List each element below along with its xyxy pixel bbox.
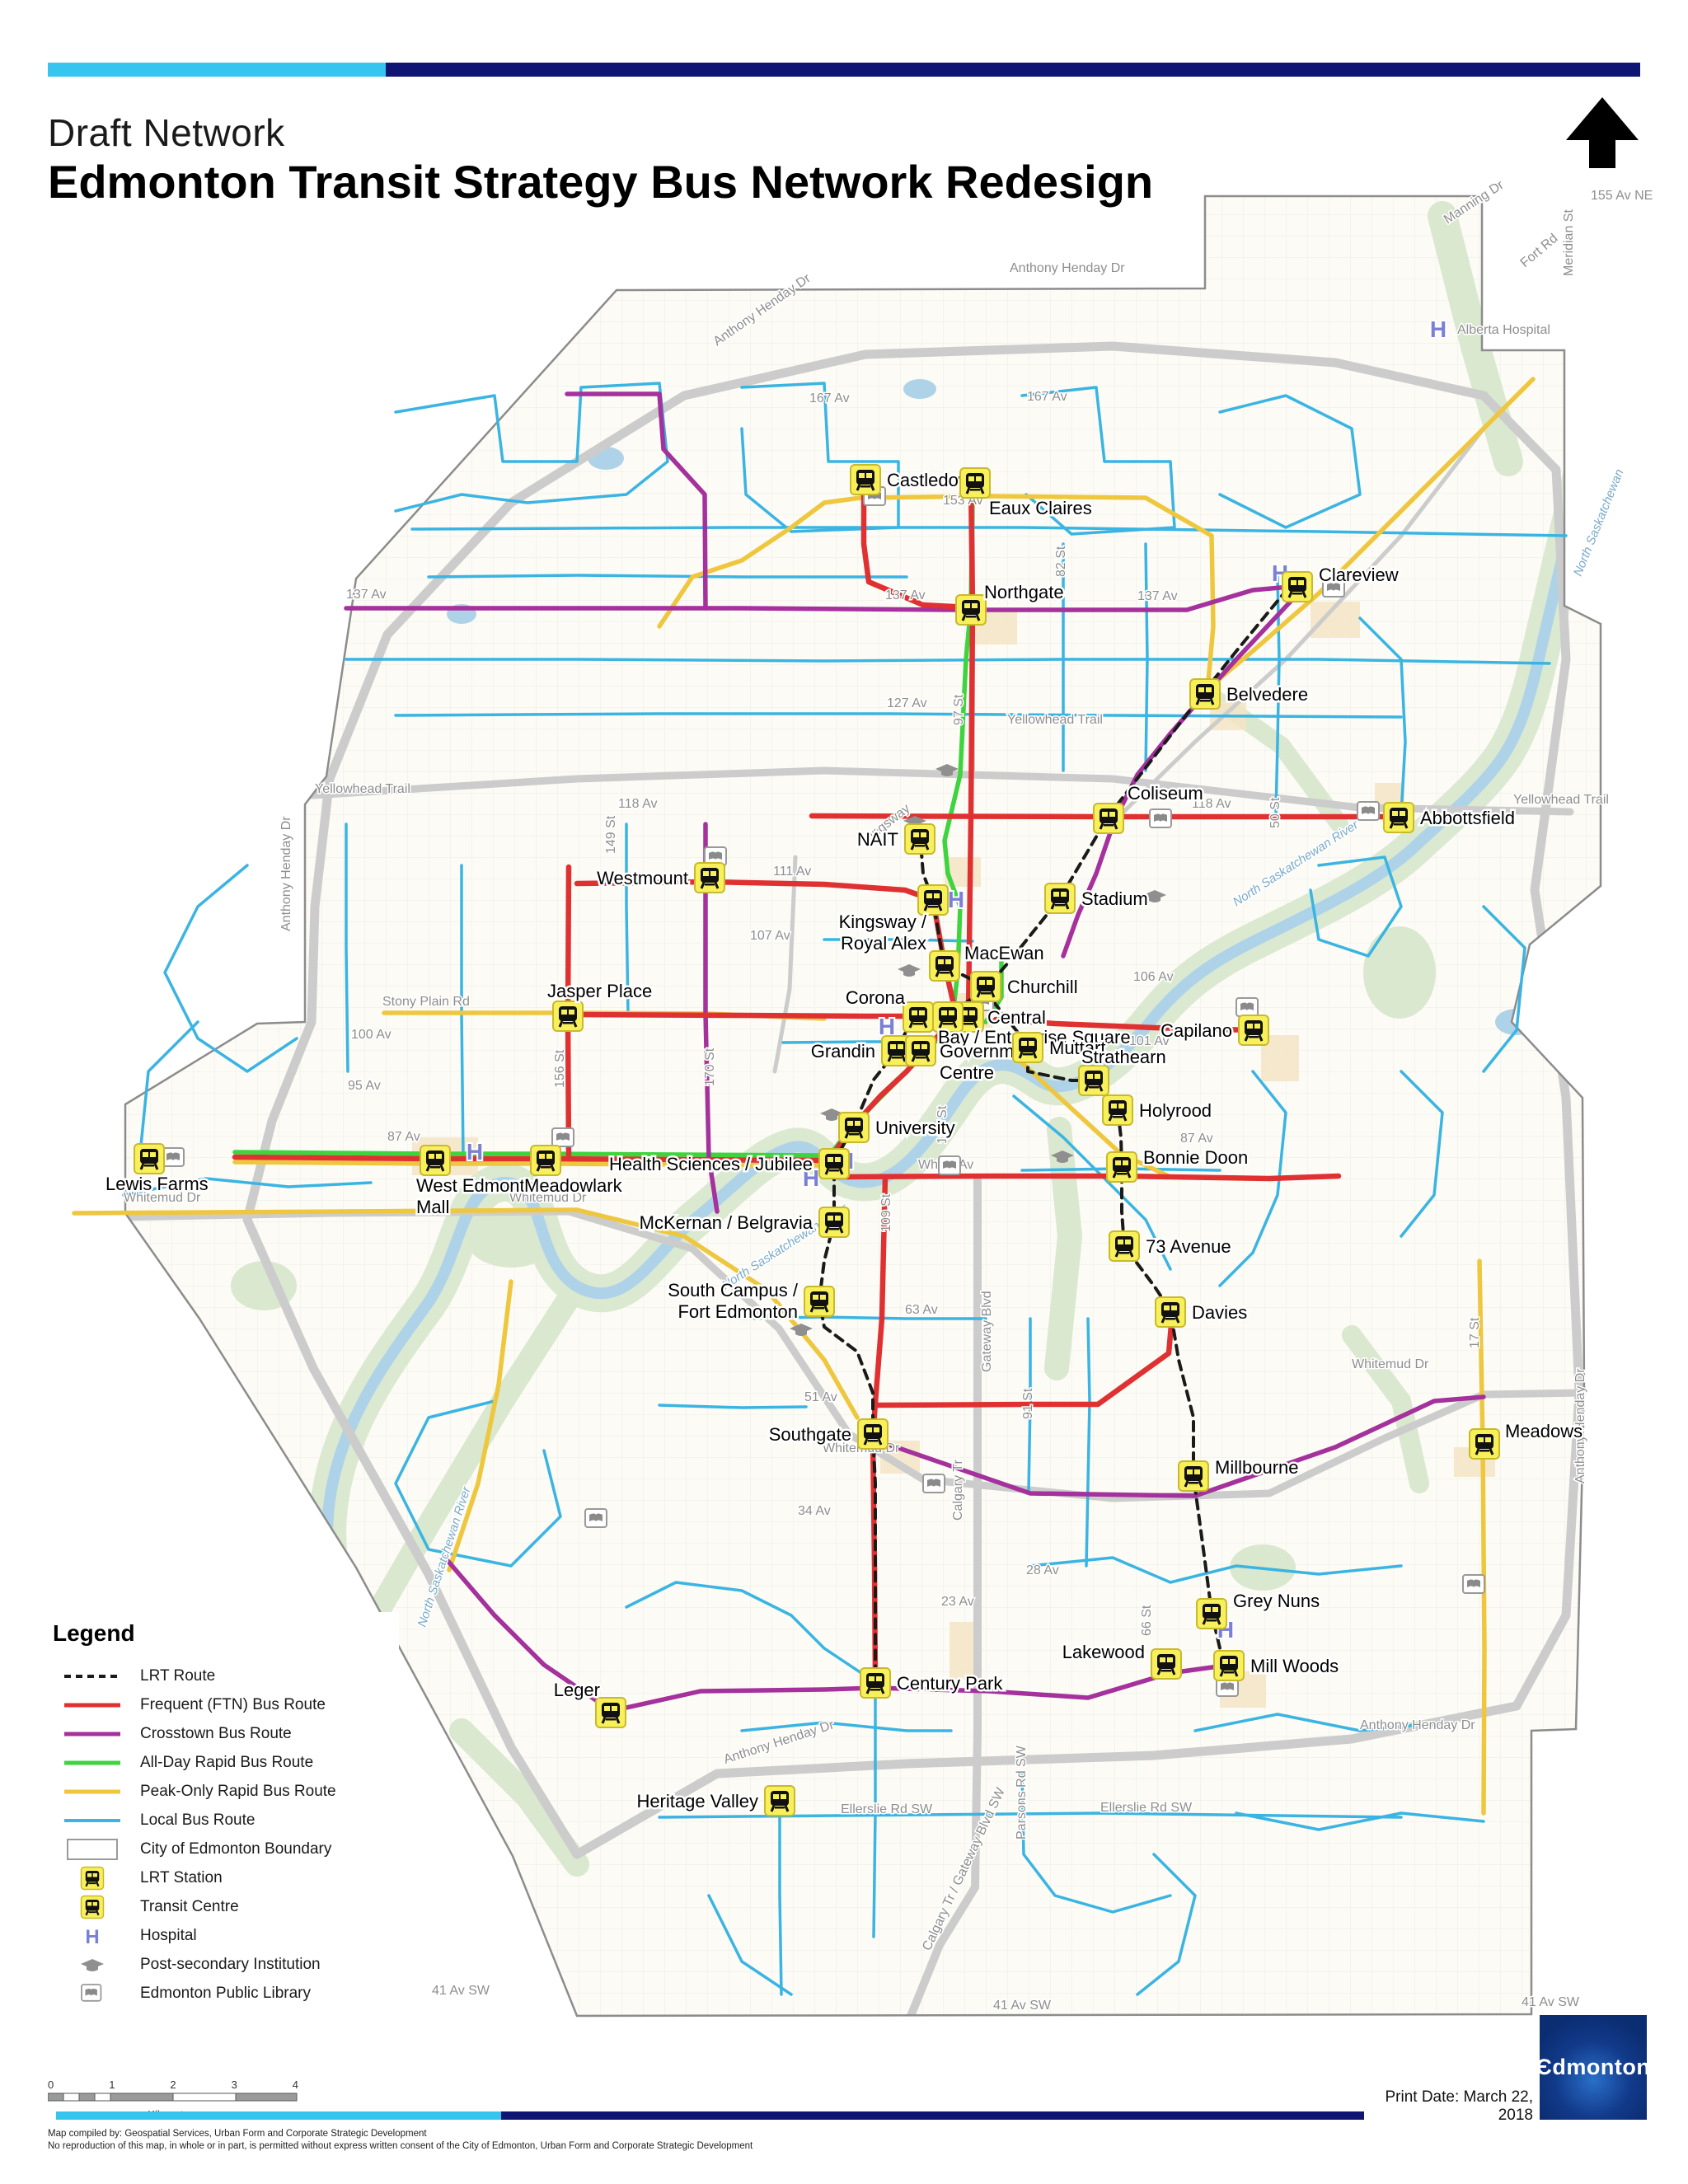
station-label-abbottsfield: Abbottsfield [1420,808,1515,828]
legend-item-label: City of Edmonton Boundary [132,1840,331,1858]
bus-window-right [835,1216,841,1221]
bus-window-right [1194,1469,1200,1474]
bus-window-right [150,1152,156,1157]
road-label: 97 St [952,694,966,725]
scale-segment [173,2093,236,2101]
bus-window-left [703,871,709,876]
station-lakewood [1151,1649,1181,1679]
mortarboard-base [87,1966,98,1971]
bus-window-left [1087,1074,1093,1079]
library-icon [552,1128,574,1146]
road-label: Fort Rd [1518,232,1561,270]
hospital-icon: H [467,1139,483,1165]
road-label: 28 Av [1026,1563,1059,1577]
road-label: Yellowhead Trail [315,782,410,796]
bus-bumper [1055,904,1065,907]
bus-window-right [820,1295,826,1300]
bus-bumper [970,489,980,491]
station-macewan [930,951,959,981]
park-ravine [1057,1129,1070,1368]
bus-window-right [987,980,992,985]
local-route-line [346,824,348,1071]
road-label: 63 Av [905,1303,938,1317]
library-icon [162,1148,184,1166]
road-label: Anthony Henday Dr [1010,261,1125,275]
legend-item-rapid: All-Day Rapid Bus Route [53,1748,399,1777]
legend-swatch-cell [53,1691,132,1719]
road-label: Whitemud Dr [1352,1357,1429,1371]
road-label: 137 Av [346,588,387,602]
station-73-avenue [1109,1231,1139,1261]
road-label: 137 Av [885,588,926,602]
station-health-sciences-jubilee [819,1149,849,1179]
bus-bumper [775,1807,785,1809]
bus-window-left [1205,1607,1211,1612]
map-page: Draft Network Edmonton Transit Strategy … [0,0,1688,2184]
bus-window-right [919,1010,925,1015]
bus-window-right [934,893,940,898]
road-label: 87 Av [1180,1132,1213,1146]
bus-bumper [860,485,870,488]
bus-bumper [829,1228,839,1230]
station-label-university: University [875,1118,955,1138]
station-leger [596,1698,626,1727]
station-label-bonnie-doon: Bonnie Doon [1143,1147,1248,1168]
bus-window-right [93,1873,97,1877]
station-mckernan-belgravia [819,1207,849,1237]
station-label-century-park: Century Park [897,1673,1003,1694]
bus-bumper [916,1057,926,1059]
library-icon [923,1474,945,1493]
road-label: 111 Av [773,865,811,879]
bus-window-right [874,1427,879,1432]
station-coliseum [1094,804,1123,833]
station-millbourne [1179,1461,1208,1491]
station-label-jasper-place: Jasper Place [547,981,652,1001]
legend-item-label: Edmonton Public Library [132,1985,311,2003]
legend-item-label: All-Day Rapid Bus Route [132,1754,313,1772]
bus-window-right [612,1706,617,1711]
boundary-box [68,1840,117,1859]
legend-swatch-cell [53,1720,132,1748]
legend-item-institution: Post-secondary Institution [53,1950,399,1979]
station-label-holyrood: Holyrood [1139,1100,1212,1121]
river-label: North Saskatchewan [1571,467,1627,579]
station-muttart [1013,1033,1043,1062]
station-label-churchill: Churchill [1007,977,1078,997]
lrt-station-swatch-icon [82,1867,104,1889]
library-icon [82,1985,101,2001]
station-label-meadowlark: Meadowlark [524,1175,623,1196]
bus-window-right [1109,812,1115,817]
road-label: 106 Av [1133,970,1174,984]
crosstown-route-line [346,608,963,610]
bus-bumper [89,1882,96,1884]
road-label: 109 St [879,1193,893,1232]
bus-bumper [1200,700,1210,702]
bus-bumper [964,1023,973,1025]
library-icon [1463,1575,1484,1593]
road-label: Ellerslie Rd SW [841,1802,933,1816]
bus-window-left [1102,812,1108,817]
station-university [839,1113,869,1142]
footer-accent-bar [56,2111,1364,2120]
road-label: 167 Av [809,391,850,405]
legend-swatch-hospital: H [53,1922,132,1950]
road-label: 41 Av SW [432,1984,490,1998]
station-nait [905,824,935,854]
bus-bumper [563,1022,573,1024]
bus-window-right [1400,811,1405,816]
bus-window-left [813,1295,818,1300]
legend-swatch-rapid [53,1749,132,1777]
station-label-grandin: Grandin [811,1041,875,1062]
edmonton-logo-text: Єdmonton [1536,2055,1651,2080]
transit-centre-swatch-icon [82,1896,104,1918]
legend-item-hospital: HHospital [53,1921,399,1950]
bus-window-right [436,1154,442,1159]
bus-window-left [1053,892,1059,897]
bus-bumper [144,1165,154,1167]
bus-bumper [1189,1482,1198,1484]
station-label-stadium: Stadium [1081,888,1148,909]
road-label: 170 St [703,1047,717,1086]
bus-window-left [1478,1437,1484,1442]
bus-bumper [928,906,938,908]
library-icon [585,1509,607,1527]
legend-item-label: Peak-Only Rapid Bus Route [132,1783,336,1801]
legend-swatch-cell [53,1951,132,1979]
legend-swatch-cell: H [53,1922,132,1950]
road-label: Meridian St [1562,209,1576,276]
bus-window-left [87,1873,91,1877]
scale-bar-ticks: 01234 [48,2079,298,2091]
bus-window-right [569,1010,574,1015]
bus-window-right [1125,1240,1131,1244]
road-label: 41 Av SW [1522,1995,1580,2009]
bus-bumper [814,1307,824,1310]
road-label: 87 Av [387,1130,420,1144]
road-label: Gateway Blvd [980,1291,994,1372]
bus-window-left [968,476,974,481]
legend-swatch-lrt-dash [53,1662,132,1690]
station-label-lewis-farms: Lewis Farms [105,1174,209,1194]
local-route-line [429,575,907,577]
legend-item-label: LRT Route [132,1667,215,1685]
bus-window-right [898,1044,903,1049]
bus-window-left [890,1044,896,1049]
road-label: 118 Av [618,797,657,811]
bus-bumper [870,1689,880,1691]
legend-swatch-lrt-station [53,1864,132,1892]
station-label-westmount: Westmount [597,868,688,888]
bus-window-left [1222,1659,1228,1664]
bus-bumper [940,972,949,974]
bus-window-left [1164,1305,1170,1310]
bus-window-left [979,980,985,985]
bus-window-left [913,832,919,837]
legend-swatch-transit-centre [53,1893,132,1921]
bus-bumper [1161,1670,1171,1672]
hospital-icon: H [85,1926,99,1948]
station-belvedere [1190,679,1220,709]
bus-bumper [430,1166,440,1169]
road-label: Parsons Rd SW [1015,1745,1029,1840]
road-label: 41 Av SW [993,1999,1052,2013]
road-label: Yellowhead Trail [1513,793,1609,807]
bus-window-left [773,1794,779,1799]
station-northgate [956,595,986,625]
bus-window-right [1095,1074,1100,1079]
legend-swatch-peak [53,1778,132,1806]
station-heritage-valley [765,1786,795,1816]
station-label-heritage-valley: Heritage Valley [636,1791,758,1811]
hospital-icon: H [948,887,964,912]
station-label-73-avenue: 73 Avenue [1146,1236,1231,1257]
station-davies [1156,1297,1185,1327]
road-label: 107 Av [750,929,790,943]
bus-window-right [855,1121,860,1126]
bus-window-right [866,473,872,478]
legend-swatch-cell [53,1807,132,1835]
road-label: Yellowhead Trail [1007,713,1103,727]
legend-title: Legend [53,1620,399,1647]
bus-window-right [972,603,978,608]
bus-window-left [847,1121,853,1126]
bus-window-left [1198,687,1204,692]
road-label: Ellerslie Rd SW [1100,1801,1193,1815]
legend-swatch-cell [53,1893,132,1921]
bus-bumper [705,883,715,886]
bus-window-left [912,1010,917,1015]
legend-item-label: Hospital [132,1927,197,1945]
bus-window-left [1118,1240,1123,1244]
bus-bumper [849,1133,859,1136]
road-label: Calgary Tr [951,1460,965,1521]
legend-item-label: Frequent (FTN) Bus Route [132,1696,326,1714]
station-meadows [1470,1429,1499,1459]
bus-window-right [93,1902,97,1906]
station-government-centre [906,1036,935,1066]
legend-swatch-library [53,1980,132,2008]
legend-swatch-local [53,1807,132,1835]
ftn-route-line [834,1176,1339,1179]
station-label-kingsway-royal-alex: Kingsway /Royal Alex [839,912,927,954]
legend-swatch-institution [53,1951,132,1979]
road-label: 95 Av [348,1079,381,1093]
library-icon [1357,802,1379,820]
legend-item-crosstown: Crosstown Bus Route [53,1719,399,1748]
bus-bumper [1292,593,1302,595]
bus-window-right [1298,580,1304,585]
bus-window-left [1187,1469,1193,1474]
bus-window-right [1118,1104,1124,1108]
legend-item-local: Local Bus Route [53,1806,399,1835]
bus-bumper [915,845,925,847]
bus-bumper [1249,1036,1259,1038]
station-churchill [971,972,1001,1001]
road-label: 137 Av [1137,589,1178,603]
bus-window-left [828,1216,833,1221]
station-bonnie-doon [1107,1152,1137,1182]
station-label-millbourne: Millbourne [1215,1457,1299,1478]
legend-panel: Legend LRT RouteFrequent (FTN) Bus Route… [43,1612,399,2019]
station-westmount [695,863,724,893]
bus-bumper [89,1911,96,1913]
station-label-health-sciences-jubilee: Health Sciences / Jubilee [609,1154,813,1174]
bus-bumper [913,1023,923,1025]
bus-bumper [981,992,991,995]
bus-window-left [1392,811,1398,816]
station-southgate [858,1419,888,1449]
scale-segment [48,2093,63,2101]
bus-bumper [1117,1173,1127,1175]
bus-bumper [1394,823,1404,826]
station-capilano [1239,1015,1268,1045]
station-label-davies: Davies [1192,1302,1247,1323]
bus-bumper [606,1718,616,1721]
station-clareview [1282,572,1312,602]
station-label-strathearn: Strathearn [1081,1047,1166,1067]
station-jasper-place [553,1001,583,1031]
bus-window-left [1291,580,1296,585]
bus-window-right [835,1157,841,1162]
bus-window-left [1021,1041,1027,1046]
bus-bumper [541,1166,551,1169]
bus-window-right [710,871,716,876]
scale-tick: 2 [170,2079,176,2091]
station-label-central: Central [987,1007,1046,1028]
legend-swatch-crosstown [53,1720,132,1748]
bus-bumper [1207,1619,1217,1622]
legend-swatch-cell [53,1662,132,1690]
station-south-campus-fort-edmonton [804,1286,834,1316]
bus-window-right [1029,1041,1034,1046]
library-icon [1236,998,1258,1016]
bus-bumper [868,1440,878,1442]
bus-window-right [1230,1659,1236,1664]
bus-window-left [859,473,865,478]
scale-segment [63,2093,79,2101]
scale-tick: 1 [109,2079,115,2091]
legend-swatch-cell [53,1749,132,1777]
bus-window-right [969,1010,975,1015]
bus-bumper [1104,824,1114,827]
bus-window-right [921,1044,927,1049]
bus-bumper [1089,1086,1099,1089]
legend-item-label: Crosstown Bus Route [132,1725,292,1743]
scale-tick: 4 [293,2079,298,2091]
legend-item-library: Edmonton Public Library [53,1979,399,2008]
bus-window-left [1115,1160,1121,1165]
library-icon [1150,809,1171,827]
scale-bar-graphic [48,2093,298,2102]
station-label-clareview: Clareview [1319,565,1399,585]
station-stadium [1045,883,1075,913]
bus-window-left [1160,1657,1165,1662]
legend-swatch-cell [53,1835,132,1863]
bus-bumper [1224,1671,1234,1674]
bus-window-left [143,1152,148,1157]
bus-window-right [546,1154,552,1159]
bus-window-right [1171,1305,1177,1310]
station-abbottsfield [1384,803,1414,832]
station-label-southgate: Southgate [769,1424,851,1445]
station-meadowlark [531,1146,560,1175]
road-label: 91 St [1021,1388,1035,1419]
bus-bumper [1119,1252,1129,1254]
legend-rows: LRT RouteFrequent (FTN) Bus RouteCrossto… [53,1661,399,2008]
bus-bumper [1165,1318,1175,1320]
bus-bumper [892,1057,902,1059]
bus-window-right [945,959,951,964]
scale-tick: 0 [48,2079,54,2091]
station-label-eaux-claires: Eaux Claires [989,498,1092,518]
scale-segment [110,2093,173,2101]
bus-window-right [876,1676,882,1681]
bus-window-right [1061,892,1067,897]
bus-window-left [926,893,932,898]
station-eaux-claires [960,468,990,498]
station-west-edmonton-mall [420,1146,450,1175]
map-credits: Map compiled by: Geospatial Services, Ur… [48,2128,753,2153]
bus-bumper [1479,1450,1489,1452]
station-label-capilano: Capilano [1160,1020,1232,1041]
station-strathearn [1079,1066,1109,1095]
bus-window-right [1206,687,1212,692]
station-label-meadows: Meadows [1505,1421,1582,1441]
bus-window-left [604,1706,610,1711]
bus-window-left [1111,1104,1117,1108]
legend-swatch-cell [53,1980,132,2008]
station-corona [903,1002,933,1032]
bus-window-left [429,1154,434,1159]
station-mill-woods [1214,1651,1244,1680]
bus-window-left [539,1154,545,1159]
station-label-corona: Corona [846,987,906,1008]
station-label-nait: NAIT [857,829,898,850]
legend-item-label: Post-secondary Institution [132,1956,321,1974]
legend-swatch-cell [53,1864,132,1892]
legend-item-peak: Peak-Only Rapid Bus Route [53,1777,399,1806]
legend-item-label: Local Bus Route [132,1811,255,1830]
bus-window-left [869,1676,874,1681]
road-label: Stony Plain Rd [382,995,470,1009]
local-route-line [1146,544,1147,771]
road-label: 82 St [1054,546,1068,577]
bus-window-right [976,476,982,481]
road-label: 66 St [1140,1605,1154,1636]
road-label: 17 St [1468,1317,1482,1348]
station-holyrood [1103,1095,1132,1125]
credit-line-1: Map compiled by: Geospatial Services, Ur… [48,2128,753,2140]
station-label-grey-nuns: Grey Nuns [1233,1591,1320,1611]
lake [903,379,936,399]
legend-item-transit-centre: Transit Centre [53,1892,399,1921]
road-label: Anthony Henday Dr [1360,1718,1475,1732]
road-label: 23 Av [941,1595,974,1609]
station-castledowns [851,465,880,494]
road-label: Alberta Hospital [1457,323,1550,337]
station-label-mill-woods: Mill Woods [1250,1656,1339,1676]
road-label: 34 Av [798,1504,831,1518]
legend-item-boundary: City of Edmonton Boundary [53,1835,399,1863]
print-date: Print Date: March 22, 2018 [1360,2088,1533,2125]
bus-bumper [1113,1116,1123,1118]
bus-window-left [941,1010,947,1015]
road-label: 156 St [553,1049,567,1088]
library-icon [939,1156,960,1174]
